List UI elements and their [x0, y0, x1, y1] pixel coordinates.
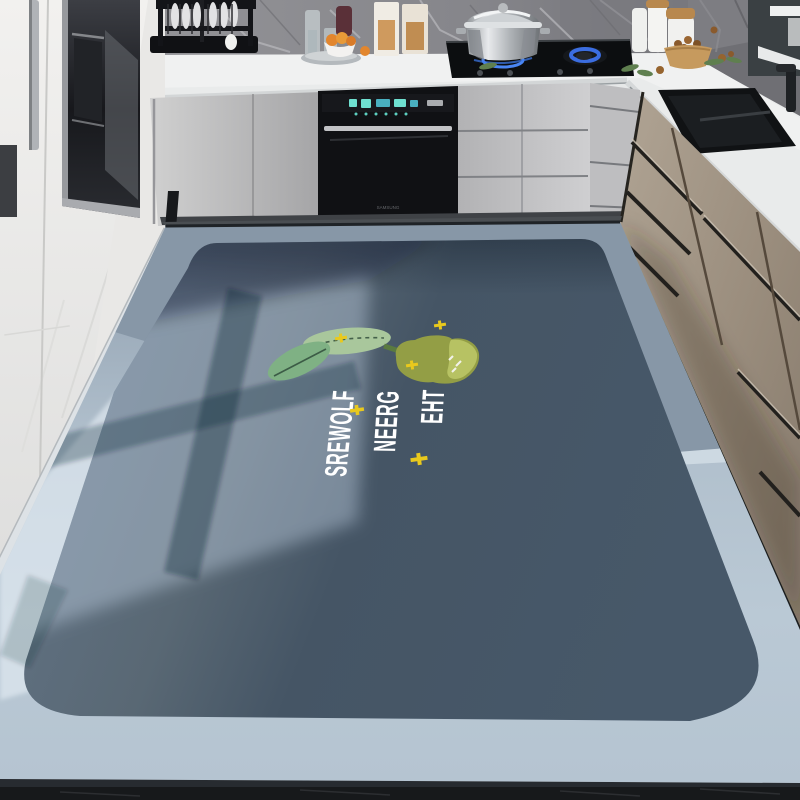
- svg-text:EHT: EHT: [416, 389, 452, 424]
- svg-text:NEERG: NEERG: [369, 390, 407, 452]
- svg-text:SAMSUNG: SAMSUNG: [377, 205, 400, 210]
